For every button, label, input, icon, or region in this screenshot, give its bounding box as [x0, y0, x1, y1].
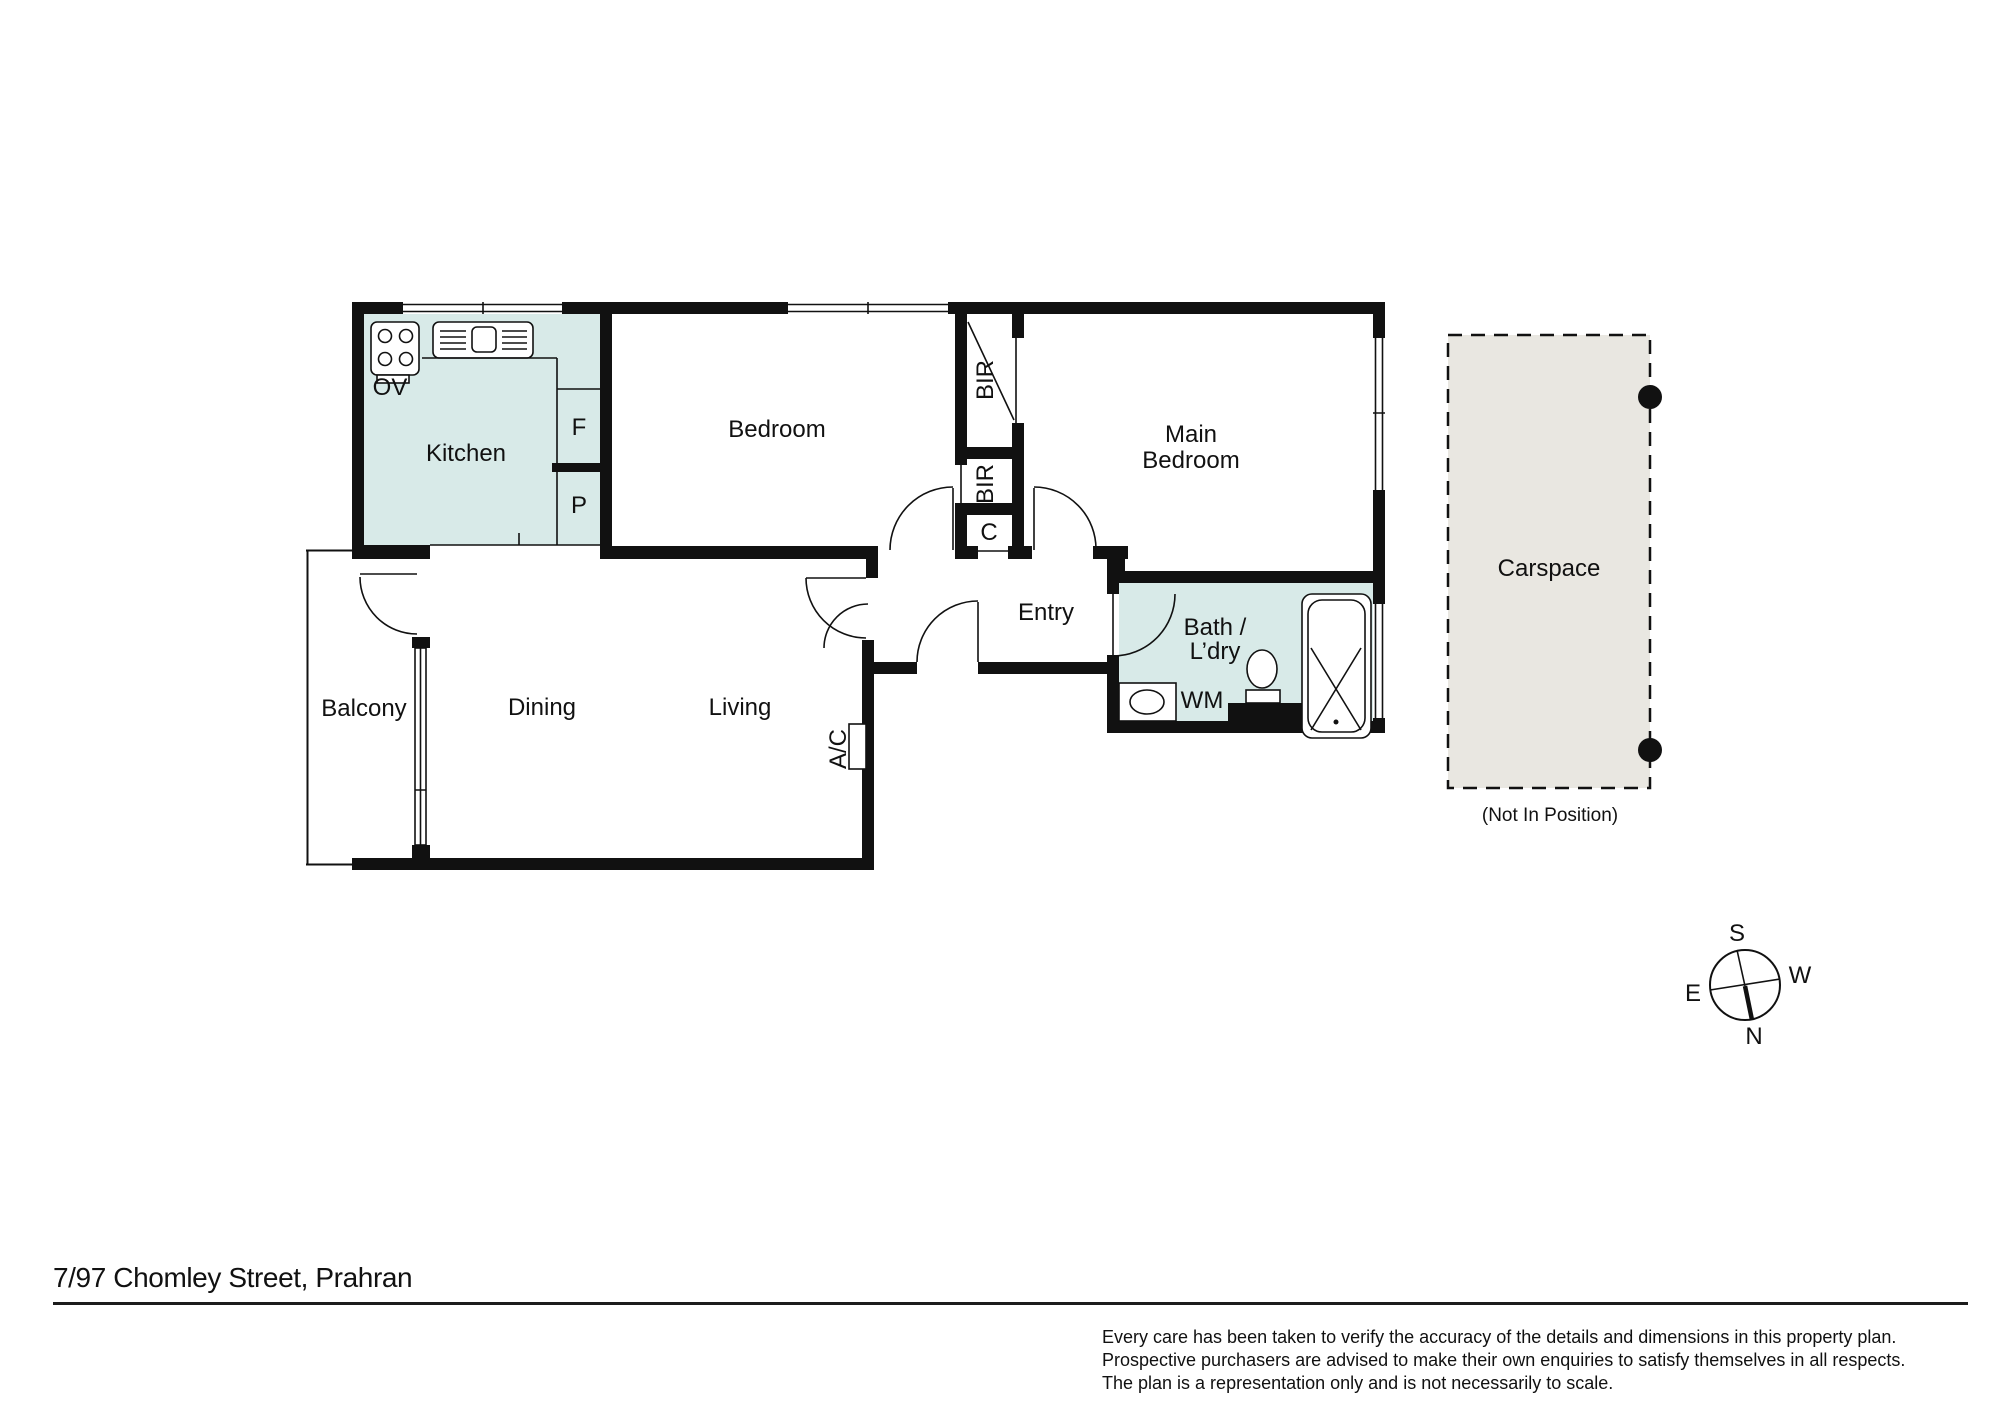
carspace-label: Carspace [1498, 555, 1601, 582]
disclaimer-line-3: The plan is a representation only and is… [1102, 1372, 1962, 1395]
front-door [917, 601, 978, 662]
balcony-sliding-door [415, 648, 426, 845]
balcony-label: Balcony [321, 695, 406, 722]
oven-label: OV [373, 374, 408, 401]
compass-west-label: W [1789, 962, 1812, 989]
ac-label: A/C [825, 729, 852, 769]
vanity-basin-icon [1119, 683, 1176, 721]
robe-doors [961, 322, 1016, 551]
bedroom-door [890, 487, 953, 550]
compass-east-label: E [1685, 980, 1701, 1007]
sink-icon [433, 322, 533, 358]
disclaimer-line-1: Every care has been taken to verify the … [1102, 1326, 1962, 1349]
carspace-bollard-top [1638, 385, 1662, 409]
carspace-note: (Not In Position) [1482, 805, 1618, 826]
fridge-label: F [572, 414, 587, 441]
footer-divider [53, 1302, 1968, 1305]
compass-south-label: S [1729, 920, 1745, 947]
compass-icon: S W E N [1685, 920, 1812, 1050]
bathtub-icon [1302, 594, 1371, 738]
bath-window [1373, 604, 1385, 718]
bath-laundry-label-line1: Bath / [1184, 614, 1247, 641]
bir-upper-label: BIR [972, 360, 999, 400]
bath-laundry-label-line2: L’dry [1190, 638, 1241, 665]
washing-machine-label: WM [1181, 687, 1224, 714]
toilet-icon [1246, 650, 1280, 703]
floorplan-drawing: S W E N Kitchen Bedroom Main Bedroom Ent… [0, 0, 2000, 1413]
bedroom-window [788, 302, 948, 314]
floorplan-page: { "floorplan": { "rooms": { "kitchen": "… [0, 0, 2000, 1413]
pantry-label: P [571, 492, 587, 519]
main-bedroom-label-line1: Main [1165, 421, 1217, 448]
balcony-door [360, 574, 417, 634]
bir-lower-label: BIR [972, 464, 999, 504]
cupboard-label: C [980, 519, 997, 546]
kitchen-window [403, 302, 562, 314]
living-door [806, 578, 868, 648]
living-label: Living [709, 694, 772, 721]
carspace-bollard-bottom [1638, 738, 1662, 762]
main-bedroom-label-line2: Bedroom [1142, 447, 1239, 474]
main-bedroom-window [1373, 338, 1385, 490]
entry-label: Entry [1018, 599, 1074, 626]
compass-north-label: N [1745, 1023, 1762, 1050]
property-address: 7/97 Chomley Street, Prahran [53, 1262, 412, 1294]
disclaimer-line-2: Prospective purchasers are advised to ma… [1102, 1349, 1962, 1372]
bedroom-label: Bedroom [728, 416, 825, 443]
bath-bench [1228, 703, 1302, 722]
kitchen-label: Kitchen [426, 440, 506, 467]
disclaimer-text: Every care has been taken to verify the … [1102, 1326, 1962, 1395]
main-bedroom-door [1034, 487, 1096, 550]
dining-label: Dining [508, 694, 576, 721]
